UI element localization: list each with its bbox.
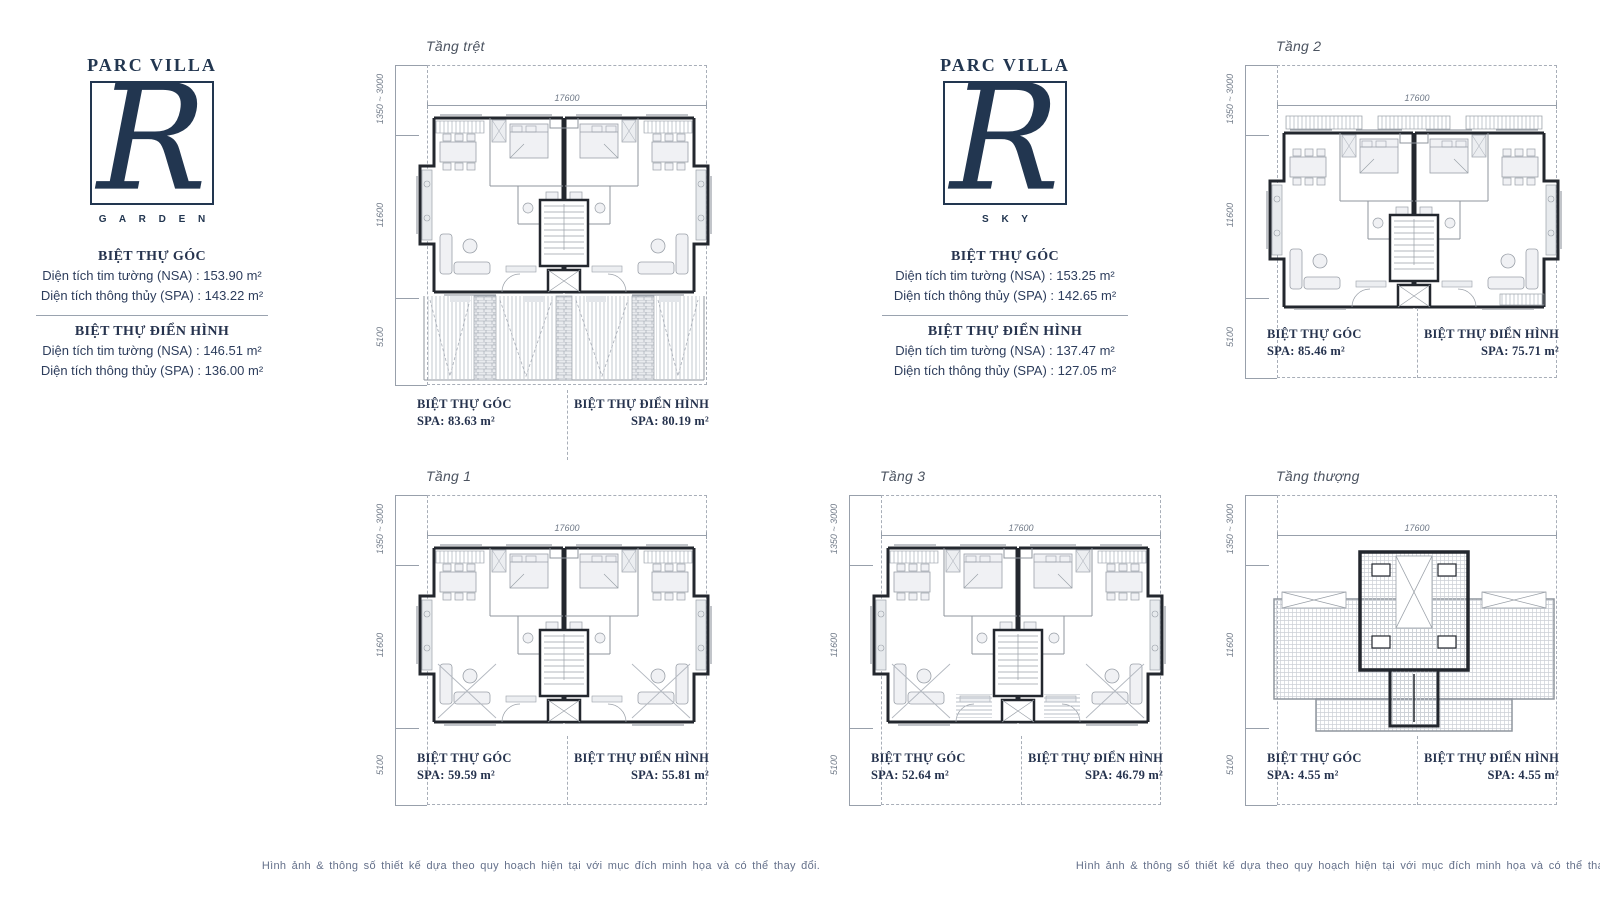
dim-tick <box>395 805 427 806</box>
unit-label-dien-hinh: BIỆT THỰ ĐIỂN HÌNH SPA: 4.55 m² <box>1424 750 1559 784</box>
floor-plan-drawing-tang-tret <box>410 114 718 389</box>
horizontal-dimension-line <box>427 535 707 536</box>
vertical-dimension-line <box>395 495 396 805</box>
spec-line-nsa: Diện tích tim tường (NSA) : 153.25 m² <box>880 267 1130 285</box>
spec-title-goc: BIỆT THỰ GÓC <box>880 249 1130 265</box>
vertical-dimension-line <box>1245 65 1246 378</box>
unit-label-dien-hinh: BIỆT THỰ ĐIỂN HÌNH SPA: 80.19 m² <box>574 396 709 430</box>
dim-label-setback: 1350 ~ 3000 <box>1225 54 1235 144</box>
floor-title: Tầng 2 <box>1276 38 1321 54</box>
dim-tick <box>395 65 427 66</box>
dim-label-setback: 1350 ~ 3000 <box>375 484 385 574</box>
dim-label-depth: 11600 <box>1225 170 1235 260</box>
dim-label-width: 17600 <box>1277 523 1557 533</box>
horizontal-dimension-line <box>881 535 1161 536</box>
spec-line-spa: Diện tích thông thủy (SPA) : 127.05 m² <box>880 362 1130 380</box>
spec-divider <box>36 315 268 316</box>
floor-plan-tang-1: Tầng 1 1350 ~ 3000 11600 5100 17600 BIỆT… <box>362 468 714 868</box>
brand-sky: PARC VILLA R S K Y BIỆT THỰ GÓC Diện tíc… <box>880 55 1130 380</box>
spec-line-nsa: Diện tích tim tường (NSA) : 153.90 m² <box>34 267 270 285</box>
unit-spa: SPA: 46.79 m² <box>1028 767 1163 784</box>
floor-plan-drawing-tang-1 <box>410 544 718 744</box>
dim-tick <box>1245 805 1277 806</box>
dim-tick <box>849 495 881 496</box>
dim-label-depth: 11600 <box>375 600 385 690</box>
spec-line-spa: Diện tích thông thủy (SPA) : 136.00 m² <box>34 362 270 380</box>
dim-label-front: 5100 <box>1225 720 1235 810</box>
brand-logo-box: R <box>943 81 1067 205</box>
floor-plan-tang-2: Tầng 2 1350 ~ 3000 11600 5100 17600 BIỆT… <box>1212 38 1564 438</box>
dim-tick <box>1245 65 1277 66</box>
floor-plan-drawing-tang-thuong <box>1260 544 1568 739</box>
unit-name: BIỆT THỰ GÓC <box>871 750 966 767</box>
floor-plan-tang-thuong: Tầng thượng 1350 ~ 3000 11600 5100 17600 <box>1212 468 1564 868</box>
dim-label-front: 5100 <box>375 720 385 810</box>
spec-line-nsa: Diện tích tim tường (NSA) : 146.51 m² <box>34 342 270 360</box>
unit-divider-dash <box>567 390 568 460</box>
dim-label-front: 5100 <box>1225 292 1235 382</box>
brand-garden: PARC VILLA R G A R D E N BIỆT THỰ GÓC Di… <box>34 55 270 380</box>
unit-spa: SPA: 4.55 m² <box>1267 767 1362 784</box>
dim-label-width: 17600 <box>881 523 1161 533</box>
floor-plan-tang-tret: Tầng trệt 1350 ~ 3000 11600 5100 17600 <box>362 38 714 483</box>
dim-tick <box>1245 495 1277 496</box>
vertical-dimension-line <box>395 65 396 385</box>
dim-label-front: 5100 <box>375 292 385 382</box>
floor-plan-drawing-tang-2 <box>1260 114 1568 310</box>
dim-label-width: 17600 <box>427 523 707 533</box>
unit-spa: SPA: 55.81 m² <box>574 767 709 784</box>
dim-label-width: 17600 <box>1277 93 1557 103</box>
spec-divider <box>882 315 1128 316</box>
brochure-page: PARC VILLA R G A R D E N BIỆT THỰ GÓC Di… <box>0 0 1600 907</box>
disclaimer-right: Hình ảnh & thông số thiết kế dựa theo qu… <box>1076 860 1600 872</box>
vertical-dimension-line <box>849 495 850 805</box>
dim-label-depth: 11600 <box>829 600 839 690</box>
spec-line-spa: Diện tích thông thủy (SPA) : 142.65 m² <box>880 287 1130 305</box>
floor-title: Tầng 3 <box>880 468 925 484</box>
unit-spa: SPA: 80.19 m² <box>574 413 709 430</box>
unit-spa: SPA: 75.71 m² <box>1424 343 1559 360</box>
unit-label-goc: BIỆT THỰ GÓC SPA: 83.63 m² <box>417 396 512 430</box>
unit-label-dien-hinh: BIỆT THỰ ĐIỂN HÌNH SPA: 46.79 m² <box>1028 750 1163 784</box>
spec-line-spa: Diện tích thông thủy (SPA) : 143.22 m² <box>34 287 270 305</box>
unit-name: BIỆT THỰ ĐIỂN HÌNH <box>1424 750 1559 767</box>
dim-tick <box>849 805 881 806</box>
unit-spa: SPA: 4.55 m² <box>1424 767 1559 784</box>
horizontal-dimension-line <box>1277 535 1557 536</box>
unit-spa: SPA: 85.46 m² <box>1267 343 1362 360</box>
unit-name: BIỆT THỰ ĐIỂN HÌNH <box>1028 750 1163 767</box>
unit-name: BIỆT THỰ GÓC <box>1267 750 1362 767</box>
dim-label-depth: 11600 <box>1225 600 1235 690</box>
brand-logo-letter: R <box>945 66 1065 212</box>
floor-title: Tầng trệt <box>426 38 485 54</box>
spec-line-nsa: Diện tích tim tường (NSA) : 137.47 m² <box>880 342 1130 360</box>
spec-title-goc: BIỆT THỰ GÓC <box>34 249 270 265</box>
unit-spa: SPA: 52.64 m² <box>871 767 966 784</box>
dim-label-setback: 1350 ~ 3000 <box>375 54 385 144</box>
spec-title-dien-hinh: BIỆT THỰ ĐIỂN HÌNH <box>880 324 1130 340</box>
brand-logo-box: R <box>90 81 214 205</box>
brand-specs: BIỆT THỰ GÓC Diện tích tim tường (NSA) :… <box>880 249 1130 380</box>
brand-logo-letter: R <box>92 66 212 212</box>
unit-name: BIỆT THỰ ĐIỂN HÌNH <box>1424 326 1559 343</box>
floor-plan-tang-3: Tầng 3 1350 ~ 3000 11600 5100 17600 BIỆT… <box>816 468 1168 868</box>
unit-label-goc: BIỆT THỰ GÓC SPA: 4.55 m² <box>1267 750 1362 784</box>
dim-label-setback: 1350 ~ 3000 <box>1225 484 1235 574</box>
unit-label-goc: BIỆT THỰ GÓC SPA: 59.59 m² <box>417 750 512 784</box>
spec-title-dien-hinh: BIỆT THỰ ĐIỂN HÌNH <box>34 324 270 340</box>
floor-title: Tầng 1 <box>426 468 471 484</box>
unit-divider-dash <box>1417 736 1418 805</box>
unit-name: BIỆT THỰ ĐIỂN HÌNH <box>574 750 709 767</box>
floor-plan-drawing-tang-3 <box>864 544 1172 744</box>
horizontal-dimension-line <box>1277 105 1557 106</box>
dim-label-setback: 1350 ~ 3000 <box>829 484 839 574</box>
dim-tick <box>1245 378 1277 379</box>
unit-name: BIỆT THỰ GÓC <box>1267 326 1362 343</box>
disclaimer-left: Hình ảnh & thông số thiết kế dựa theo qu… <box>262 860 820 872</box>
unit-label-dien-hinh: BIỆT THỰ ĐIỂN HÌNH SPA: 75.71 m² <box>1424 326 1559 360</box>
unit-name: BIỆT THỰ GÓC <box>417 396 512 413</box>
brand-specs: BIỆT THỰ GÓC Diện tích tim tường (NSA) :… <box>34 249 270 380</box>
unit-label-dien-hinh: BIỆT THỰ ĐIỂN HÌNH SPA: 55.81 m² <box>574 750 709 784</box>
unit-divider-dash <box>1021 736 1022 805</box>
unit-label-goc: BIỆT THỰ GÓC SPA: 52.64 m² <box>871 750 966 784</box>
unit-divider-dash <box>567 736 568 805</box>
vertical-dimension-line <box>1245 495 1246 805</box>
unit-name: BIỆT THỰ ĐIỂN HÌNH <box>574 396 709 413</box>
dim-tick <box>395 495 427 496</box>
unit-label-goc: BIỆT THỰ GÓC SPA: 85.46 m² <box>1267 326 1362 360</box>
unit-name: BIỆT THỰ GÓC <box>417 750 512 767</box>
unit-divider-dash <box>1417 308 1418 378</box>
dim-label-depth: 11600 <box>375 170 385 260</box>
dim-label-front: 5100 <box>829 720 839 810</box>
dim-label-width: 17600 <box>427 93 707 103</box>
unit-spa: SPA: 59.59 m² <box>417 767 512 784</box>
unit-spa: SPA: 83.63 m² <box>417 413 512 430</box>
horizontal-dimension-line <box>427 105 707 106</box>
floor-title: Tầng thượng <box>1276 468 1360 484</box>
